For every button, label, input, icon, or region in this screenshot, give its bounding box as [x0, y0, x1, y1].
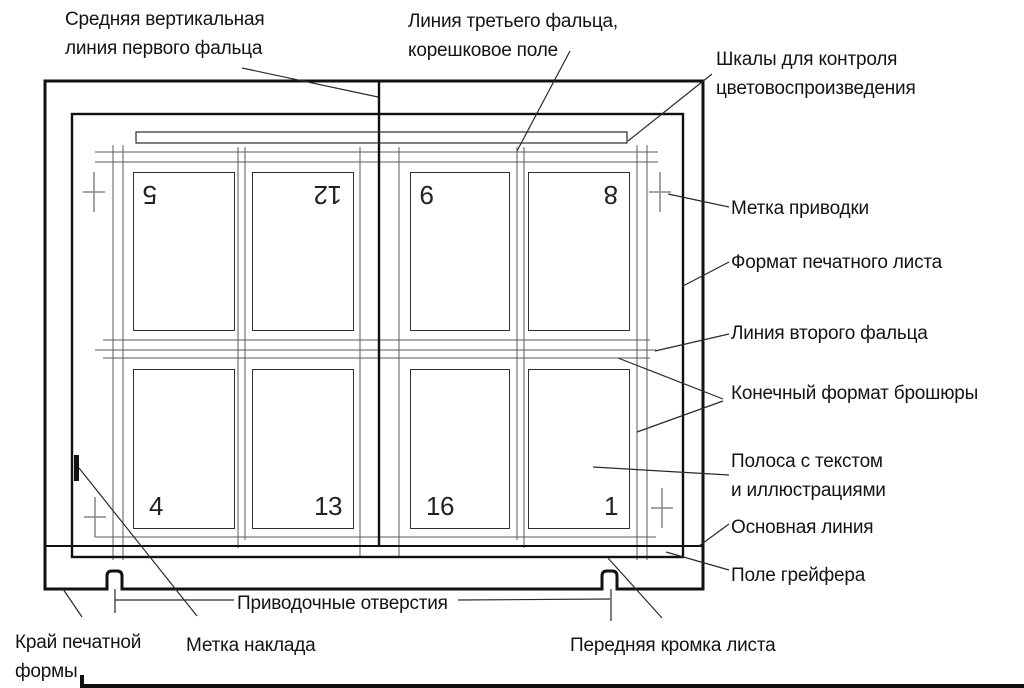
page-box: 8: [528, 172, 630, 331]
label-register-mark: Метка приводки: [731, 194, 869, 223]
page-box: 12: [252, 172, 354, 331]
label-lay-mark: Метка наклада: [186, 631, 316, 660]
label-final-booklet-format: Конечный формат брошюры: [731, 379, 978, 408]
color-control-bar: [136, 132, 627, 143]
leader-lines: [63, 51, 729, 621]
label-color-control-scales: Шкалы для контроля цветовоспроизведения: [716, 45, 916, 103]
label-printing-form-edge: Край печатной формы: [15, 628, 141, 686]
label-sheet-front-edge: Передняя кромка листа: [570, 631, 776, 660]
label-second-fold-line: Линия второго фальца: [731, 319, 928, 348]
page-number: 1: [604, 493, 618, 519]
page-box: 13: [252, 369, 354, 529]
page-number: 8: [604, 182, 618, 208]
register-cross-icon: [84, 497, 106, 537]
register-cross-icon: [651, 488, 673, 528]
page-number: 5: [143, 182, 157, 208]
page-number: 13: [314, 493, 342, 519]
register-cross-icon: [649, 172, 671, 212]
label-middle-vertical-first-fold: Средняя вертикальная линия первого фальц…: [65, 5, 264, 63]
label-third-fold-spine-field: Линия третьего фальца, корешковое поле: [408, 7, 618, 65]
page-number: 4: [149, 493, 163, 519]
label-register-holes: Приводочные отверстия: [237, 589, 448, 618]
page-number: 16: [426, 493, 454, 519]
lay-mark-tick: [74, 455, 79, 481]
page-box: 4: [133, 369, 235, 529]
page-number: 12: [314, 182, 342, 208]
label-printed-sheet-format: Формат печатного листа: [731, 248, 942, 277]
cropped-next-figure-edge: [80, 675, 1024, 688]
page-box: 9: [410, 172, 510, 331]
label-text-illustration-strip: Полоса с текстом и иллюстрациями: [731, 447, 886, 505]
label-gripper-field: Поле грейфера: [731, 561, 865, 590]
imposition-scheme-diagram: 5 12 9 8 4 13 16 1 Средняя вертикальная …: [0, 0, 1024, 688]
label-base-line: Основная линия: [731, 513, 873, 542]
page-number: 9: [420, 182, 434, 208]
page-box: 16: [410, 369, 510, 529]
page-box: 1: [528, 369, 630, 529]
page-box: 5: [133, 172, 235, 331]
register-cross-icon: [83, 172, 105, 212]
